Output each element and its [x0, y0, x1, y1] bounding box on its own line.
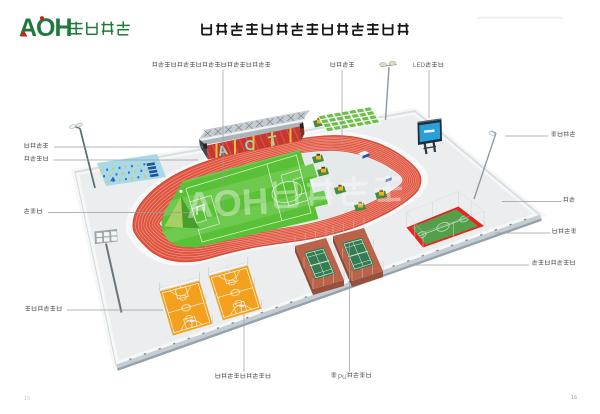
svg-text:LED: LED	[413, 62, 426, 69]
svg-text:AOH: AOH	[19, 14, 72, 42]
svg-text:AOH: AOH	[185, 181, 269, 226]
svg-text:PU: PU	[338, 374, 347, 381]
svg-text:16: 16	[571, 395, 577, 401]
svg-text:15: 15	[24, 396, 30, 402]
